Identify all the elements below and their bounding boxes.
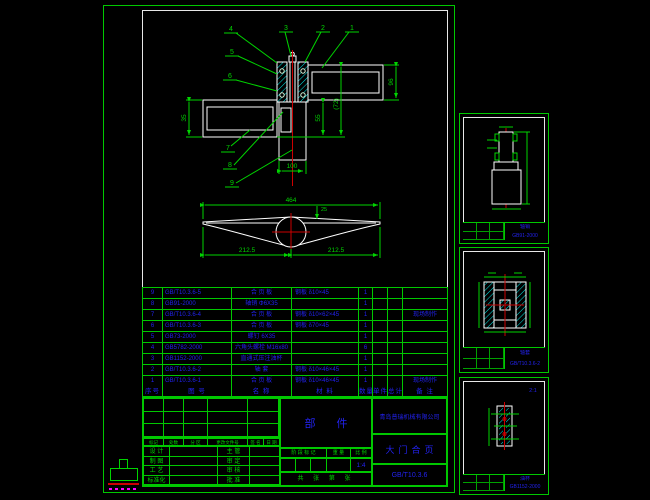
part-number-cell: 8 xyxy=(143,299,163,309)
part-name-cell: 直通式压注油杯 xyxy=(232,354,292,364)
part-code-cell: GB1152-2000 xyxy=(163,354,232,364)
part-code-cell: GB73-2000 xyxy=(163,332,232,342)
dim-profile-offset: 25 xyxy=(321,207,327,213)
callout-1: 1 xyxy=(350,25,354,32)
part-code-cell: GB/T10.3.6-3 xyxy=(163,321,232,331)
part-code-cell: GB91-2000 xyxy=(163,299,232,309)
parts-table-rows: 9 GB/T10.3.6-5 合 页 板 钢板 δ10×45 1 8 GB91-… xyxy=(143,288,447,387)
part-name-cell: 合 页 板 xyxy=(232,321,292,331)
detail-1-grid xyxy=(463,223,505,240)
part-number-cell: 4 xyxy=(143,343,163,353)
part-weight1-cell xyxy=(373,332,388,342)
revision-empty-grid xyxy=(143,398,280,438)
detail-2-title-block: 轴套 GB/T10.3.6-2 xyxy=(463,347,545,369)
detail-1-name: 轴销 xyxy=(505,224,545,230)
table-row: 9 GB/T10.3.6-5 合 页 板 钢板 δ10×45 1 xyxy=(143,288,447,299)
drawing-title: 大门合页 xyxy=(372,434,447,464)
part-remark-cell xyxy=(403,321,447,331)
part-qty-cell: 1 xyxy=(359,365,373,375)
part-weight1-cell xyxy=(373,365,388,375)
detail-2-number: GB/T10.3.6-2 xyxy=(505,361,545,367)
callout-6: 6 xyxy=(228,73,232,80)
part-weight2-cell xyxy=(388,321,403,331)
callout-2: 2 xyxy=(321,25,325,32)
part-remark-cell xyxy=(403,365,447,375)
part-number-cell: 1 xyxy=(143,376,163,387)
detail-1-number: GB91-2000 xyxy=(505,233,545,239)
detail-3-oilcup-drawing: 2:1 xyxy=(463,381,545,474)
sheet-count-cell: 共 张 第 张 xyxy=(280,472,372,486)
label-stage-mark: 阶 段 标 记 xyxy=(281,449,327,457)
rev-col-zone: 分 区 xyxy=(184,439,208,445)
profile-view-geometry xyxy=(203,213,380,253)
part-qty-cell: 1 xyxy=(359,332,373,342)
part-material-cell: 钢板 δ10×46×45 xyxy=(292,365,359,375)
detail-3-view-label: 2:1 xyxy=(529,388,537,394)
part-remark-cell xyxy=(403,343,447,353)
label-design: 设 计 xyxy=(144,447,170,457)
dim-left-bar: 35 xyxy=(181,114,188,122)
label-weight: 重 量 xyxy=(327,449,351,457)
part-remark-cell xyxy=(403,332,447,342)
table-row: 3 GB1152-2000 直通式压注油杯 1 xyxy=(143,354,447,365)
part-name-cell: 螺钉 6X35 xyxy=(232,332,292,342)
detail-1-pin-drawing xyxy=(463,117,545,222)
company-name: 青岛普瑞机械有限公司 xyxy=(372,398,447,434)
label-supervisor: 主 管 xyxy=(218,447,250,457)
callout-9: 9 xyxy=(230,180,234,187)
label-draft: 制 图 xyxy=(144,457,170,467)
dim-column: 55 xyxy=(315,114,322,122)
part-number-cell: 6 xyxy=(143,321,163,331)
part-weight1-cell xyxy=(373,299,388,309)
plot-stamp-red-line xyxy=(108,483,139,485)
part-name-cell: 合 页 板 xyxy=(232,310,292,320)
part-remark-cell xyxy=(403,354,447,364)
part-material-cell: 钢板 δ10×45 xyxy=(292,288,359,298)
detail-3-grid xyxy=(463,475,505,491)
part-number-cell: 3 xyxy=(143,354,163,364)
detail-1-title-block: 轴销 GB91-2000 xyxy=(463,222,545,240)
part-qty-cell: 1 xyxy=(359,376,373,387)
table-row: 1 GB/T10.3.6-1 合 页 板 钢板 δ10×46×45 1 现场制作 xyxy=(143,376,447,387)
part-number-cell: 7 xyxy=(143,310,163,320)
rev-col-sign: 签 名 xyxy=(248,439,264,445)
part-weight2-cell xyxy=(388,332,403,342)
part-name-cell: 轴销 Φ6X35 xyxy=(232,299,292,309)
table-row: 4 GB5782-2000 六角头螺栓 M16x80 6 xyxy=(143,343,447,354)
part-weight2-cell xyxy=(388,299,403,309)
parts-table: 9 GB/T10.3.6-5 合 页 板 钢板 δ10×45 1 8 GB91-… xyxy=(142,287,448,397)
detail-2-bushing-drawing xyxy=(463,251,545,347)
part-material-cell xyxy=(292,299,359,309)
table-row: 2 GB/T10.3.6-2 轴 套 钢板 δ10×46×45 1 xyxy=(143,365,447,376)
part-name-cell: 合 页 板 xyxy=(232,288,292,298)
part-code-cell: GB5782-2000 xyxy=(163,343,232,353)
part-weight1-cell xyxy=(373,343,388,353)
part-code-cell: GB/T10.3.6-4 xyxy=(163,310,232,320)
callout-7: 7 xyxy=(226,145,230,152)
callout-3: 3 xyxy=(284,25,288,32)
part-weight2-cell xyxy=(388,310,403,320)
dim-profile-right: 212.5 xyxy=(328,247,345,254)
part-name-cell: 六角头螺栓 M16x80 xyxy=(232,343,292,353)
part-material-cell: 钢板 δ10×62×45 xyxy=(292,310,359,320)
plot-stamp-base xyxy=(110,468,138,481)
drawing-number: GB/T10.3.6 xyxy=(372,464,447,486)
cad-drawing-canvas: 1 2 3 4 5 6 7 8 9 96 (72) 55 35 100 xyxy=(0,0,650,500)
label-standard: 标准化 xyxy=(144,476,170,486)
part-weight2-cell xyxy=(388,365,403,375)
label-check: 审 核 xyxy=(218,466,250,476)
part-material-cell: 钢板 δ10×46×45 xyxy=(292,376,359,387)
part-weight2-cell xyxy=(388,343,403,353)
detail-3-title-block: 油杯 GB1152-2000 xyxy=(463,474,545,491)
part-material-cell: 钢板 δ70×45 xyxy=(292,321,359,331)
dim-profile-overall: 464 xyxy=(286,197,297,204)
part-weight2-cell xyxy=(388,376,403,387)
part-material-cell xyxy=(292,354,359,364)
rev-col-docno: 更改文件号 xyxy=(208,439,248,445)
title-block: 标记 处数 分 区 更改文件号 签 名 日 期 设 计 主 管 制 图 审 定 … xyxy=(142,397,448,487)
rev-col-mark: 标记 xyxy=(144,439,164,445)
doc-type-cell: 部 件 xyxy=(280,398,372,448)
rev-col-date: 日 期 xyxy=(264,439,279,445)
part-weight1-cell xyxy=(373,310,388,320)
part-code-cell: GB/T10.3.6-5 xyxy=(163,288,232,298)
rev-col-count: 处数 xyxy=(164,439,184,445)
label-scale: 比 例 xyxy=(351,449,371,457)
callout-8: 8 xyxy=(228,162,232,169)
signature-grid: 设 计 主 管 制 图 审 定 工 艺 审 核 标准化 批 准 xyxy=(143,446,280,486)
part-remark-cell: 现场制作 xyxy=(403,310,447,320)
part-weight2-cell xyxy=(388,354,403,364)
part-qty-cell: 1 xyxy=(359,321,373,331)
part-number-cell: 5 xyxy=(143,332,163,342)
table-row: 5 GB73-2000 螺钉 6X35 1 xyxy=(143,332,447,343)
callout-5: 5 xyxy=(230,49,234,56)
plot-stamp-magenta-dashes xyxy=(109,488,139,490)
part-qty-cell: 1 xyxy=(359,288,373,298)
detail-3-name: 油杯 xyxy=(505,476,545,482)
dim-profile-left: 212.5 xyxy=(239,247,256,254)
part-qty-cell: 6 xyxy=(359,343,373,353)
part-weight1-cell xyxy=(373,376,388,387)
revision-header-row: 标记 处数 分 区 更改文件号 签 名 日 期 xyxy=(143,438,280,446)
callout-4: 4 xyxy=(229,26,233,33)
part-qty-cell: 1 xyxy=(359,354,373,364)
part-number-cell: 2 xyxy=(143,365,163,375)
part-name-cell: 合 页 板 xyxy=(232,376,292,387)
table-row: 6 GB/T10.3.6-3 合 页 板 钢板 δ70×45 1 xyxy=(143,321,447,332)
detail-2-name: 轴套 xyxy=(505,350,545,356)
stage-value-row: 1:4 xyxy=(280,458,372,472)
part-code-cell: GB/T10.3.6-2 xyxy=(163,365,232,375)
detail-3-number: GB1152-2000 xyxy=(505,484,545,490)
part-weight1-cell xyxy=(373,288,388,298)
part-weight2-cell xyxy=(388,288,403,298)
part-material-cell xyxy=(292,343,359,353)
part-remark-cell xyxy=(403,299,447,309)
stage-header-row: 阶 段 标 记 重 量 比 例 xyxy=(280,448,372,458)
part-weight1-cell xyxy=(373,321,388,331)
table-row: 7 GB/T10.3.6-4 合 页 板 钢板 δ10×62×45 1 现场制作 xyxy=(143,310,447,321)
label-verify: 审 定 xyxy=(218,457,250,467)
part-number-cell: 9 xyxy=(143,288,163,298)
label-process: 工 艺 xyxy=(144,466,170,476)
part-remark-cell xyxy=(403,288,447,298)
label-approve: 批 准 xyxy=(218,476,250,486)
assembly-drawing-svg: 1 2 3 4 5 6 7 8 9 96 (72) 55 35 100 xyxy=(142,10,448,287)
dim-overall: (72) xyxy=(333,98,340,110)
part-code-cell: GB/T10.3.6-1 xyxy=(163,376,232,387)
dim-right-bar: 96 xyxy=(388,78,395,86)
dim-bottom: 100 xyxy=(287,163,298,170)
part-qty-cell: 1 xyxy=(359,299,373,309)
plot-stamp-tab xyxy=(119,459,128,468)
table-row: 8 GB91-2000 轴销 Φ6X35 1 xyxy=(143,299,447,310)
part-name-cell: 轴 套 xyxy=(232,365,292,375)
part-remark-cell: 现场制作 xyxy=(403,376,447,387)
part-qty-cell: 1 xyxy=(359,310,373,320)
part-weight1-cell xyxy=(373,354,388,364)
detail-2-grid xyxy=(463,348,505,369)
scale-value: 1:4 xyxy=(351,459,371,472)
part-material-cell xyxy=(292,332,359,342)
